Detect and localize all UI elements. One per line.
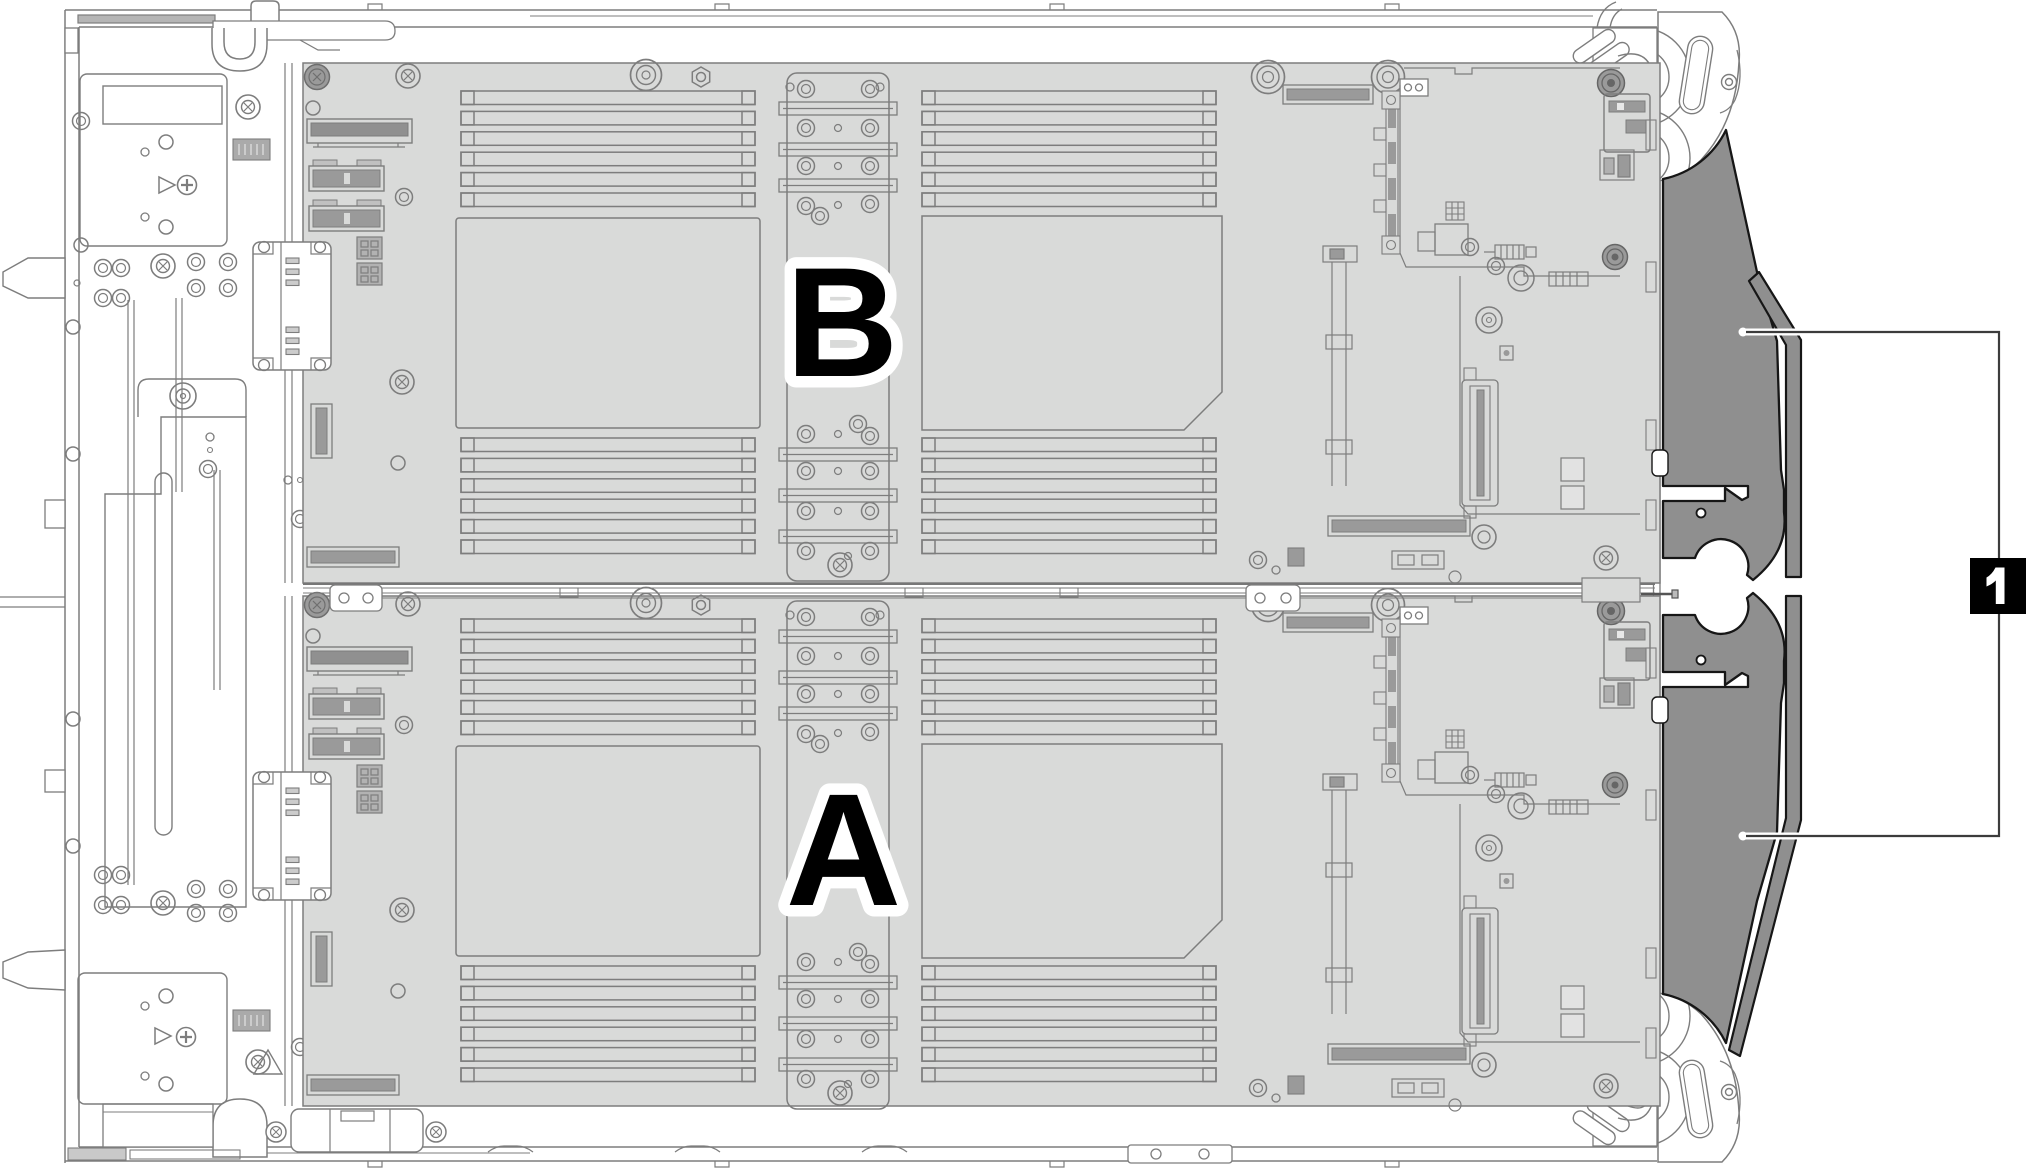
svg-text:B: B [786, 236, 899, 410]
svg-text:A: A [786, 760, 902, 939]
